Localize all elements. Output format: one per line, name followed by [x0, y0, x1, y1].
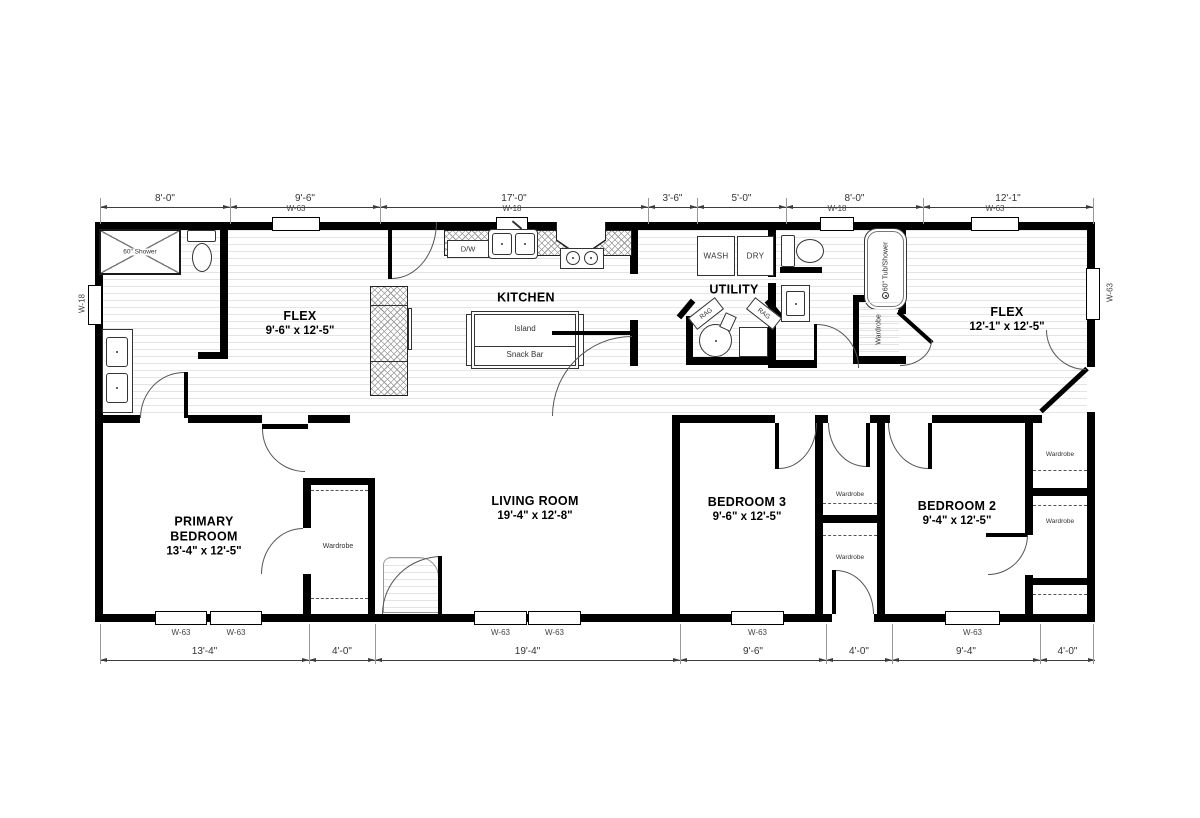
wall-divider — [932, 415, 1042, 423]
dimension-top: 8'-0" — [786, 207, 923, 208]
refrigerator — [370, 286, 408, 396]
wall-bed3-left — [672, 423, 680, 614]
window-label: W-63 — [155, 628, 207, 637]
wall-exterior-right — [1087, 412, 1095, 622]
room-name: LIVING ROOM — [491, 494, 578, 509]
wardrobe-label: Wardrobe — [1033, 518, 1087, 525]
dimension-label: 13'-4" — [189, 646, 220, 657]
room-name: FLEX — [969, 305, 1044, 320]
door-leaf — [552, 331, 632, 335]
window-w63 — [731, 611, 784, 625]
wall-divider — [188, 415, 262, 423]
door-arc — [261, 528, 303, 574]
room-label-flex1: FLEX 9'-6" x 12'-5" — [266, 309, 335, 339]
wall-closet-mid — [1025, 488, 1095, 496]
room-dims: 9'-4" x 12'-5" — [918, 514, 996, 529]
wardrobe-rod — [311, 598, 368, 599]
wall-divider — [672, 415, 775, 423]
room-label-kitchen: KITCHEN — [497, 291, 555, 306]
room-name: BEDROOM 3 — [708, 495, 786, 510]
extension-line — [648, 198, 649, 224]
cabinet-divider — [371, 361, 407, 362]
shower-fixture: 60" Shower — [99, 229, 181, 275]
wardrobe-label: Wardrobe — [308, 543, 368, 550]
toilet-tank — [781, 235, 795, 267]
wardrobe-label: Wardrobe — [1033, 451, 1087, 458]
window-w63 — [945, 611, 1000, 625]
wall-bath1-right — [220, 230, 228, 356]
window-w63 — [528, 611, 581, 625]
extension-line — [680, 624, 681, 664]
extension-line — [892, 624, 893, 664]
vanity-sink — [106, 373, 128, 403]
room-name: BEDROOM 2 — [918, 499, 996, 514]
window-w18 — [88, 285, 102, 325]
window-label: W-63 — [971, 204, 1019, 213]
island-divider — [474, 346, 576, 347]
wardrobe-label: Wardrobe — [823, 491, 877, 498]
room-name: FLEX — [266, 309, 335, 324]
extension-line — [786, 198, 787, 224]
dimension-label: 8'-0" — [152, 193, 178, 204]
room-name: PRIMARY — [166, 515, 241, 530]
dryer: DRY — [737, 236, 774, 276]
wall-wardrobe-right — [368, 478, 375, 614]
wall-utilitycloset-bottom — [686, 357, 776, 365]
room-name: BEDROOM — [166, 530, 241, 545]
dimension-bottom: 4'-0" — [1040, 660, 1095, 661]
dimension-bottom: 4'-0" — [309, 660, 375, 661]
wall-primary-right — [303, 478, 311, 528]
dimension-label: 3'-6" — [660, 193, 686, 204]
window-label: W-18 — [78, 284, 87, 324]
wardrobe-rod — [311, 490, 368, 491]
wall-bed2-right — [1025, 423, 1033, 535]
door-leaf — [184, 372, 188, 418]
tub-label: 60" Tub/Shower — [883, 227, 890, 307]
room-dims: 9'-6" x 12'-5" — [708, 510, 786, 525]
extension-line — [697, 198, 698, 224]
window-w63 — [474, 611, 527, 625]
toilet-bowl — [796, 239, 824, 263]
wall-stub — [198, 352, 228, 359]
dimension-bottom: 4'-0" — [826, 660, 892, 661]
wardrobe-label: Wardrobe — [823, 554, 877, 561]
dishwasher: D/W — [447, 240, 489, 258]
window-label: W-63 — [1106, 273, 1115, 313]
extension-line — [923, 198, 924, 224]
window-label: W-63 — [945, 628, 1000, 637]
dimension-label: 19'-4" — [512, 646, 543, 657]
door-arc — [262, 429, 305, 472]
room-label-bedroom2: BEDROOM 2 9'-4" x 12'-5" — [918, 499, 996, 529]
dimension-top: 12'-1" — [923, 207, 1093, 208]
extension-line — [1093, 198, 1094, 224]
dimension-label: 5'-0" — [729, 193, 755, 204]
window-label: W-63 — [272, 204, 320, 213]
wall-primary-right — [303, 574, 311, 614]
dryer-label: DRY — [746, 252, 766, 261]
furnace — [739, 327, 768, 357]
wall-stub — [780, 267, 822, 273]
room-dims: 13'-4" x 12'-5" — [166, 545, 241, 560]
extension-line — [826, 624, 827, 664]
dimension-label: 9'-6" — [292, 193, 318, 204]
dimension-top: 9'-6" — [230, 207, 380, 208]
dimension-top: 8'-0" — [100, 207, 230, 208]
window-label: W-63 — [731, 628, 784, 637]
room-label-utility: UTILITY — [709, 283, 758, 298]
vanity-sink — [786, 291, 805, 316]
wardrobe-rod — [1033, 594, 1087, 595]
wardrobe-label: Wardrobe — [876, 300, 883, 360]
window-w63 — [210, 611, 262, 625]
door-leaf — [928, 423, 932, 469]
kitchen-sink-bowl — [492, 233, 512, 255]
window-w18 — [820, 217, 854, 231]
dimension-bottom: 9'-6" — [680, 660, 826, 661]
burner — [584, 251, 598, 265]
wall-divider — [815, 415, 828, 423]
extension-line — [380, 198, 381, 224]
door-arc — [828, 423, 866, 467]
window-label: W-63 — [528, 628, 581, 637]
window-w63 — [971, 217, 1019, 231]
wardrobe-rod — [823, 503, 877, 504]
window-w63 — [272, 217, 320, 231]
dishwasher-label: D/W — [460, 245, 477, 254]
dimension-bottom: 19'-4" — [375, 660, 680, 661]
washer: WASH — [697, 236, 735, 276]
extension-line — [1040, 624, 1041, 664]
dimension-label: 9'-6" — [740, 646, 766, 657]
dimension-top: 3'-6" — [648, 207, 697, 208]
room-dims: 12'-1" x 12'-5" — [969, 320, 1044, 335]
extension-line — [309, 624, 310, 664]
extension-line — [375, 624, 376, 664]
room-name: KITCHEN — [497, 291, 555, 306]
shower-label: 60" Shower — [122, 249, 157, 256]
window-label: W-63 — [474, 628, 527, 637]
room-dims: 19'-4" x 12'-8" — [491, 509, 578, 524]
toilet-bowl — [192, 243, 212, 272]
burner — [566, 251, 580, 265]
room-label-primary-bedroom: PRIMARY BEDROOM 13'-4" x 12'-5" — [166, 515, 241, 560]
window-label: W-18 — [820, 204, 854, 213]
room-label-living-room: LIVING ROOM 19'-4" x 12'-8" — [491, 494, 578, 524]
dimension-label: 4'-0" — [1055, 646, 1081, 657]
door-arc — [988, 535, 1028, 575]
door-arc — [779, 423, 817, 469]
room-dims: 9'-6" x 12'-5" — [266, 324, 335, 339]
dimension-label: 12'-1" — [992, 193, 1023, 204]
dimension-top: 17'-0" — [380, 207, 648, 208]
kitchen-sink-bowl — [515, 233, 535, 255]
snack-bar-label: Snack Bar — [471, 350, 579, 359]
wall-divider — [95, 415, 140, 423]
dimension-label: 4'-0" — [846, 646, 872, 657]
vanity-sink — [106, 337, 128, 367]
window-label: W-18 — [496, 204, 528, 213]
dimension-bottom: 9'-4" — [892, 660, 1040, 661]
wall-divider — [870, 415, 890, 423]
wall-wardrobe-top — [303, 478, 375, 485]
refrigerator-handle — [408, 308, 412, 350]
dimension-label: 4'-0" — [329, 646, 355, 657]
wardrobe-rod — [1033, 470, 1087, 471]
window-w63 — [155, 611, 207, 625]
extension-line — [100, 198, 101, 224]
dimension-label: 9'-4" — [953, 646, 979, 657]
dimension-label: 8'-0" — [842, 193, 868, 204]
extension-line — [230, 198, 231, 224]
dimension-label: 17'-0" — [498, 193, 529, 204]
door-leaf — [438, 556, 442, 614]
door-leaf — [866, 423, 870, 467]
toilet-tank — [187, 230, 216, 242]
window-label: W-63 — [210, 628, 262, 637]
window-w63 — [1086, 268, 1100, 320]
dimension-top: 5'-0" — [697, 207, 786, 208]
dimension-bottom: 13'-4" — [100, 660, 309, 661]
washer-label: WASH — [703, 252, 730, 261]
rag-label: RAG — [756, 306, 773, 321]
extension-line — [100, 624, 101, 664]
cabinet-divider — [371, 305, 407, 306]
door-arc — [888, 423, 928, 469]
wardrobe-rod — [823, 535, 877, 536]
wardrobe-rod — [1033, 505, 1087, 506]
wall-corridor-mid — [815, 515, 885, 523]
room-label-bedroom3: BEDROOM 3 9'-6" x 12'-5" — [708, 495, 786, 525]
wall-closet-mid — [1025, 578, 1095, 585]
door-arc — [836, 570, 874, 614]
floor-plan: W-63 W-18 W-18 W-63 W-63 W-63 W-63 W-63 … — [0, 0, 1200, 818]
room-name: UTILITY — [709, 283, 758, 298]
wall-divider — [308, 415, 350, 423]
room-label-flex2: FLEX 12'-1" x 12'-5" — [969, 305, 1044, 335]
extension-line — [1093, 624, 1094, 664]
